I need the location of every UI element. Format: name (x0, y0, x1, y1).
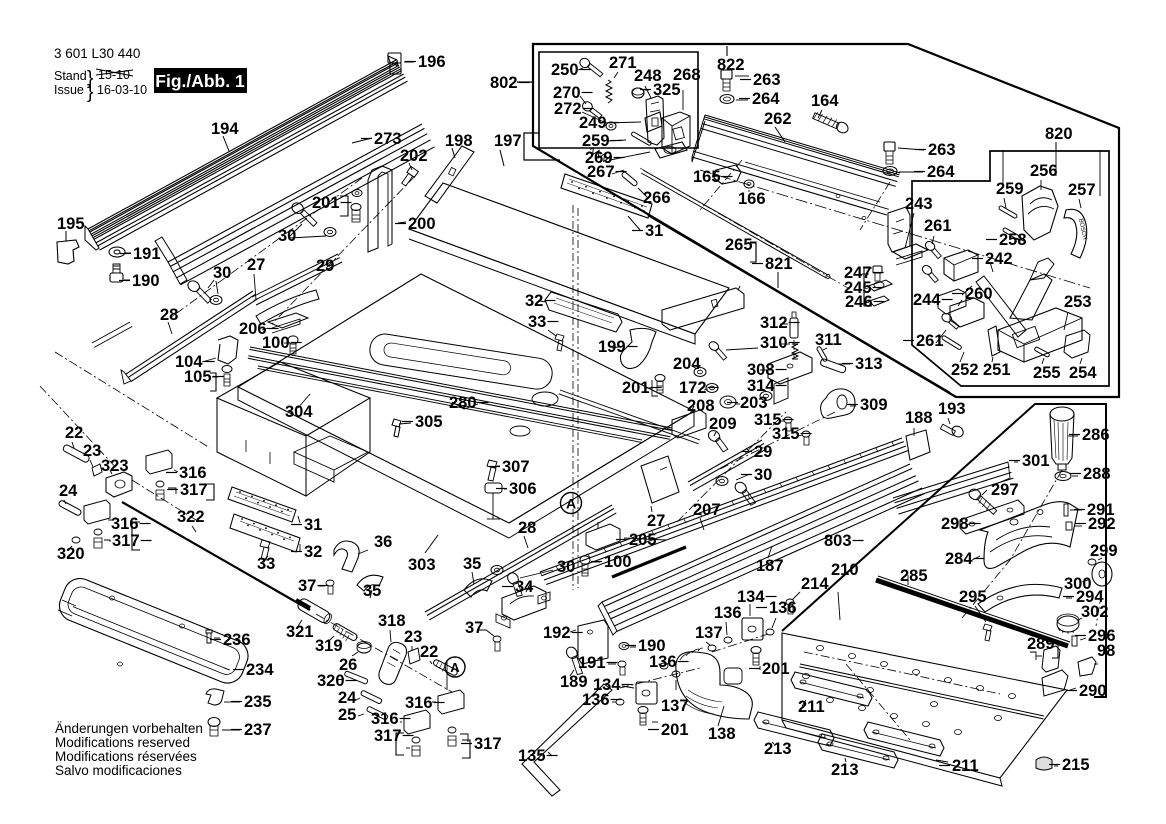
svg-text:311: 311 (815, 331, 842, 349)
svg-text:317: 317 (474, 735, 502, 753)
svg-text:137: 137 (695, 624, 723, 642)
svg-text:290: 290 (1079, 682, 1107, 700)
svg-text:822: 822 (717, 56, 745, 74)
svg-text:201: 201 (312, 194, 340, 212)
svg-text:136: 136 (714, 604, 742, 622)
svg-text:263: 263 (928, 141, 956, 159)
svg-text:105: 105 (184, 368, 212, 386)
svg-text:193: 193 (938, 400, 966, 418)
svg-text:29: 29 (754, 443, 772, 461)
svg-text:23: 23 (83, 442, 101, 460)
svg-text:190: 190 (132, 272, 160, 290)
svg-text:307: 307 (502, 458, 530, 476)
svg-text:194: 194 (211, 120, 239, 138)
svg-text:191: 191 (578, 654, 606, 672)
svg-text:191: 191 (133, 245, 161, 263)
svg-text:802: 802 (490, 74, 518, 92)
svg-text:22: 22 (420, 643, 438, 661)
svg-text:192: 192 (543, 624, 571, 642)
svg-text:22: 22 (65, 424, 83, 442)
svg-text:37: 37 (465, 619, 483, 637)
svg-text:203: 203 (740, 394, 768, 412)
svg-text:189: 189 (560, 673, 588, 691)
svg-text:242: 242 (985, 250, 1013, 268)
svg-text:320: 320 (317, 672, 345, 690)
svg-text:302: 302 (1081, 603, 1109, 621)
svg-text:266: 266 (643, 189, 671, 207)
svg-text:136: 136 (582, 691, 610, 709)
svg-text:243: 243 (905, 195, 933, 213)
svg-text:100: 100 (262, 334, 290, 352)
svg-text:273: 273 (374, 130, 402, 148)
svg-text:Modifications reserved: Modifications reserved (55, 735, 190, 750)
svg-text:27: 27 (647, 512, 665, 530)
svg-text:201: 201 (622, 379, 650, 397)
svg-text:303: 303 (408, 556, 436, 574)
svg-text:201: 201 (661, 721, 689, 739)
svg-text:196: 196 (418, 53, 446, 71)
svg-text:255: 255 (1033, 364, 1061, 382)
svg-text:319: 319 (315, 637, 343, 655)
svg-text:205: 205 (629, 531, 657, 549)
svg-text:33: 33 (257, 555, 275, 573)
svg-text:98: 98 (1097, 642, 1115, 660)
svg-text:Stand: Stand (54, 69, 87, 83)
svg-text:280: 280 (449, 394, 477, 412)
svg-text:209: 209 (709, 415, 737, 433)
svg-text:32: 32 (304, 543, 322, 561)
svg-text:301: 301 (1022, 452, 1050, 470)
svg-text:249: 249 (579, 114, 607, 132)
svg-text:321: 321 (286, 623, 314, 641)
svg-text:318: 318 (378, 612, 406, 630)
svg-text:258: 258 (999, 231, 1027, 249)
svg-text:237: 237 (244, 721, 272, 739)
svg-text:315: 315 (772, 425, 800, 443)
svg-text:30: 30 (557, 558, 575, 576)
svg-text:259: 259 (582, 132, 610, 150)
svg-text:3 601 L30 440: 3 601 L30 440 (54, 46, 140, 61)
svg-text:325: 325 (653, 81, 681, 99)
svg-text:259: 259 (996, 180, 1024, 198)
svg-text:803: 803 (824, 532, 852, 550)
svg-text:821: 821 (765, 255, 793, 273)
svg-text:310: 310 (760, 334, 788, 352)
svg-text:312: 312 (760, 314, 788, 332)
svg-text:215: 215 (1062, 756, 1090, 774)
svg-text:253: 253 (1064, 293, 1092, 311)
svg-text:187: 187 (756, 557, 784, 575)
svg-text:323: 323 (101, 457, 129, 475)
svg-text:298: 298 (941, 515, 969, 533)
svg-text:164: 164 (811, 92, 839, 110)
svg-text:A: A (450, 660, 460, 675)
svg-text:267: 267 (587, 163, 615, 181)
svg-text:317: 317 (180, 481, 208, 499)
svg-text:200: 200 (408, 215, 436, 233)
svg-text:820: 820 (1045, 125, 1073, 143)
svg-text:285: 285 (900, 567, 928, 585)
svg-text:304: 304 (285, 403, 313, 421)
svg-text:199: 199 (598, 338, 626, 356)
svg-text:35: 35 (463, 555, 481, 573)
svg-text:32: 32 (525, 292, 543, 310)
svg-text:29: 29 (316, 257, 334, 275)
svg-text:260: 260 (965, 285, 993, 303)
svg-text:37: 37 (298, 577, 316, 595)
svg-text:314: 314 (747, 377, 775, 395)
svg-text:36: 36 (374, 533, 392, 551)
svg-text:208: 208 (687, 397, 715, 415)
svg-text:204: 204 (673, 355, 701, 373)
svg-text:261: 261 (916, 332, 944, 350)
svg-text:30: 30 (754, 466, 772, 484)
svg-text:Modifications réservées: Modifications réservées (55, 749, 197, 764)
svg-text:Änderungen vorbehalten: Änderungen vorbehalten (55, 721, 203, 736)
svg-text:316: 316 (371, 710, 399, 728)
svg-text:254: 254 (1069, 364, 1097, 382)
svg-text:256: 256 (1030, 162, 1058, 180)
svg-text:31: 31 (645, 222, 663, 240)
svg-text:16-03-10: 16-03-10 (97, 83, 147, 97)
svg-text:166: 166 (738, 190, 766, 208)
svg-text:Issue: Issue (54, 83, 84, 97)
svg-text:309: 309 (860, 396, 888, 414)
svg-text:320: 320 (57, 545, 85, 563)
svg-text:272: 272 (554, 100, 582, 118)
svg-text:299: 299 (1090, 542, 1118, 560)
svg-text:35: 35 (363, 582, 381, 600)
svg-text:244: 244 (913, 291, 941, 309)
svg-text:188: 188 (905, 409, 933, 427)
svg-text:195: 195 (57, 215, 85, 233)
svg-text:234: 234 (246, 661, 274, 679)
svg-text:135: 135 (518, 747, 546, 765)
svg-text:210: 210 (831, 561, 859, 579)
svg-text:}: } (87, 82, 93, 103)
svg-text:292: 292 (1088, 515, 1116, 533)
svg-text:271: 271 (609, 54, 637, 72)
svg-text:305: 305 (415, 413, 443, 431)
svg-text:207: 207 (693, 501, 721, 519)
svg-text:263: 263 (753, 71, 781, 89)
svg-text:165: 165 (693, 168, 721, 186)
svg-text:286: 286 (1082, 426, 1110, 444)
svg-text:211: 211 (952, 757, 979, 775)
svg-text:100: 100 (604, 553, 632, 571)
svg-text:Fig./Abb. 1: Fig./Abb. 1 (155, 71, 245, 91)
svg-text:27: 27 (247, 256, 265, 274)
svg-text:213: 213 (764, 740, 792, 758)
svg-text:A: A (566, 496, 576, 512)
svg-text:28: 28 (160, 306, 178, 324)
svg-text:317: 317 (112, 532, 140, 550)
svg-text:25: 25 (338, 706, 356, 724)
svg-text:289: 289 (1027, 635, 1055, 653)
svg-text:31: 31 (304, 516, 322, 534)
svg-text:211: 211 (798, 698, 825, 716)
svg-text:251: 251 (983, 361, 1011, 379)
svg-text:316: 316 (179, 464, 207, 482)
svg-text:317: 317 (374, 727, 402, 745)
svg-text:197: 197 (494, 132, 522, 150)
svg-text:Salvo modificaciones: Salvo modificaciones (55, 763, 182, 778)
svg-text:297: 297 (991, 481, 1019, 499)
svg-text:306: 306 (509, 480, 537, 498)
svg-text:265: 265 (725, 236, 753, 254)
svg-text:24: 24 (338, 689, 357, 707)
svg-text:30: 30 (213, 264, 231, 282)
svg-text:235: 235 (244, 693, 272, 711)
svg-text:236: 236 (223, 631, 251, 649)
svg-text:284: 284 (945, 550, 973, 568)
svg-text:262: 262 (764, 110, 792, 128)
svg-text:30: 30 (278, 227, 296, 245)
svg-text:33: 33 (528, 313, 546, 331)
svg-text:213: 213 (831, 761, 859, 779)
svg-text:34: 34 (515, 578, 534, 596)
svg-text:24: 24 (59, 482, 78, 500)
svg-text:316: 316 (111, 515, 139, 533)
svg-text:261: 261 (924, 217, 952, 235)
svg-text:28: 28 (518, 519, 536, 537)
svg-text:316: 316 (405, 694, 433, 712)
svg-text:137: 137 (661, 697, 689, 715)
svg-text:246: 246 (845, 293, 873, 311)
svg-text:288: 288 (1083, 465, 1111, 483)
svg-text:198: 198 (445, 132, 473, 150)
svg-text:138: 138 (708, 725, 736, 743)
svg-text:136: 136 (649, 653, 677, 671)
svg-text:264: 264 (752, 90, 780, 108)
svg-text:214: 214 (801, 575, 829, 593)
svg-text:250: 250 (551, 61, 579, 79)
svg-text:201: 201 (762, 660, 790, 678)
svg-text:257: 257 (1068, 181, 1096, 199)
svg-text:172: 172 (679, 379, 707, 397)
svg-text:264: 264 (927, 163, 955, 181)
svg-text:322: 322 (177, 508, 205, 526)
svg-text:313: 313 (855, 355, 883, 373)
svg-text:295: 295 (959, 588, 987, 606)
svg-text:202: 202 (400, 147, 428, 165)
svg-text:136: 136 (769, 599, 797, 617)
svg-text:252: 252 (951, 361, 979, 379)
